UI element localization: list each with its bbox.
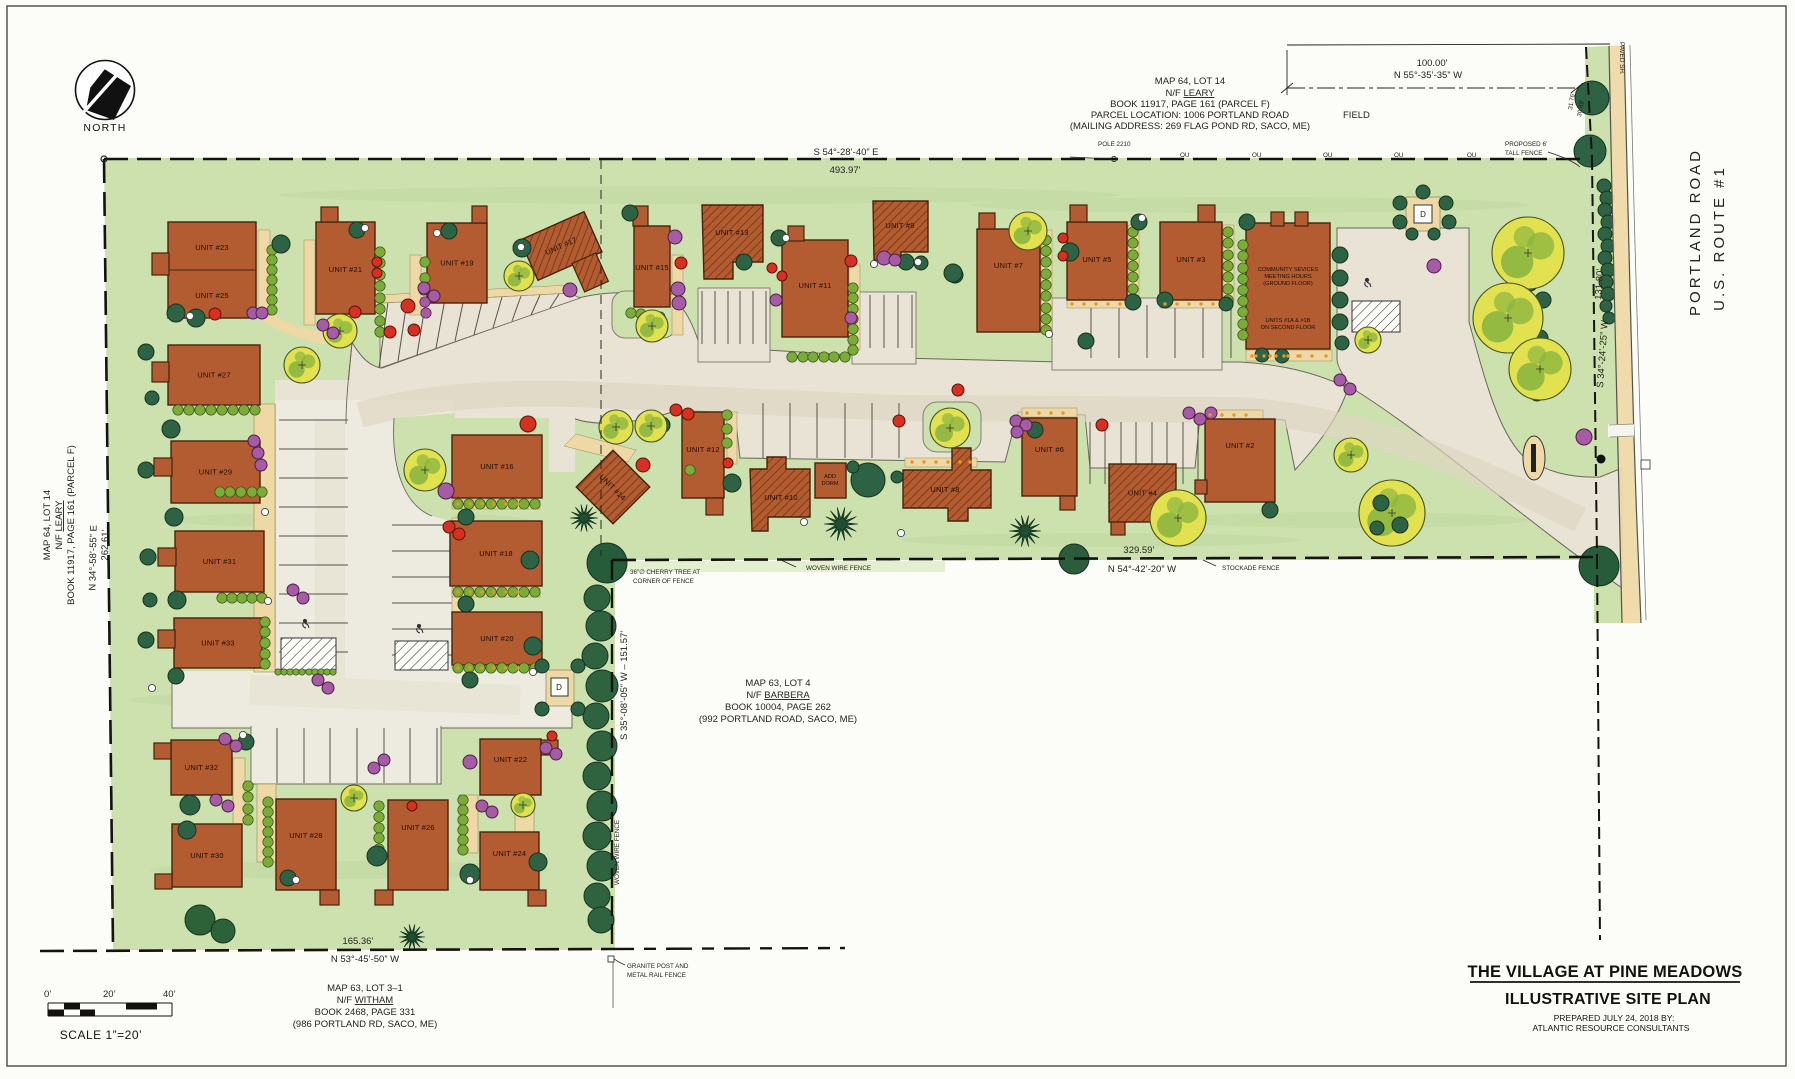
svg-text:PROPOSED 6’: PROPOSED 6’ <box>1505 141 1548 148</box>
svg-text:165.36’: 165.36’ <box>342 936 373 947</box>
svg-text:ATLANTIC RESOURCE CONSULTANTS: ATLANTIC RESOURCE CONSULTANTS <box>1532 1023 1689 1033</box>
svg-text:UNIT #30: UNIT #30 <box>190 851 224 860</box>
svg-text:DORM: DORM <box>821 481 838 487</box>
svg-text:BOOK 10004, PAGE 262: BOOK 10004, PAGE 262 <box>725 702 831 713</box>
svg-text:CORNER OF FENCE: CORNER OF FENCE <box>633 578 694 585</box>
svg-text:N/F LEARY: N/F LEARY <box>1166 88 1216 99</box>
svg-text:UNIT #3: UNIT #3 <box>1176 255 1205 264</box>
svg-text:(986 PORTLAND RD, SACO, ME: (986 PORTLAND RD, SACO, ME) <box>293 1019 437 1030</box>
svg-text:U.S. ROUTE #1: U.S. ROUTE #1 <box>1711 165 1728 311</box>
svg-text:UNIT #24: UNIT #24 <box>493 849 527 858</box>
svg-text:STOCKADE FENCE: STOCKADE FENCE <box>1222 565 1280 572</box>
svg-text:ADD: ADD <box>824 474 836 480</box>
svg-text:(GROUND FLOOR): (GROUND FLOOR) <box>1263 281 1313 287</box>
svg-text:BOOK 11917, PAGE 161 (PARCEL F: BOOK 11917, PAGE 161 (PARCEL F) <box>66 445 77 605</box>
svg-text:UNIT #2: UNIT #2 <box>1225 441 1254 450</box>
svg-text:N 34°-58’-55” E: N 34°-58’-55” E <box>87 525 99 591</box>
svg-text:FIELD: FIELD <box>1343 110 1370 121</box>
svg-text:ON SECOND FLOOR: ON SECOND FLOOR <box>1261 325 1316 331</box>
svg-text:UNIT #7: UNIT #7 <box>994 261 1023 270</box>
svg-text:UNIT #15: UNIT #15 <box>635 263 669 272</box>
svg-text:UNIT #8: UNIT #8 <box>930 485 959 494</box>
svg-text:UNIT #31: UNIT #31 <box>203 557 237 566</box>
svg-text:PARCEL LOCATION: 1006 PORTLAND: PARCEL LOCATION: 1006 PORTLAND ROAD <box>1091 110 1289 121</box>
svg-text:OU: OU <box>1180 152 1190 159</box>
svg-text:0’: 0’ <box>44 989 51 1000</box>
svg-text:(MAILING ADDRESS: 269 FLAG PON: (MAILING ADDRESS: 269 FLAG POND RD, SACO… <box>1070 121 1310 132</box>
svg-text:UNIT #20: UNIT #20 <box>480 634 514 643</box>
svg-text:BOOK 11917, PAGE 161 (PARCEL F: BOOK 11917, PAGE 161 (PARCEL F) <box>1110 99 1270 110</box>
svg-text:UNIT #4: UNIT #4 <box>1128 489 1157 498</box>
svg-text:D: D <box>1420 210 1426 219</box>
svg-text:BOOK 2468, PAGE 331: BOOK 2468, PAGE 331 <box>315 1007 416 1018</box>
svg-text:UNIT #21: UNIT #21 <box>329 265 363 274</box>
svg-text:UNIT #12: UNIT #12 <box>686 445 720 454</box>
svg-text:PORTLAND ROAD: PORTLAND ROAD <box>1687 148 1704 316</box>
svg-text:N/F WITHAM: N/F WITHAM <box>337 995 394 1006</box>
svg-text:UNIT #13: UNIT #13 <box>715 228 749 237</box>
svg-text:UNIT #10: UNIT #10 <box>764 493 798 502</box>
svg-text:UNIT #16: UNIT #16 <box>480 462 514 471</box>
svg-text:METAL RAIL FENCE: METAL RAIL FENCE <box>627 972 686 979</box>
svg-text:COMMUNITY SEVICES: COMMUNITY SEVICES <box>1258 267 1318 273</box>
svg-text:SCALE 1”=20’: SCALE 1”=20’ <box>60 1028 142 1042</box>
svg-text:UNIT #29: UNIT #29 <box>199 468 233 477</box>
svg-text:OU: OU <box>1467 152 1477 159</box>
svg-text:MAP 64, LOT 14: MAP 64, LOT 14 <box>42 490 53 560</box>
svg-text:N/F LEARY: N/F LEARY <box>54 500 65 550</box>
svg-text:S 35°-08’-05” W – 151.57’: S 35°-08’-05” W – 151.57’ <box>619 631 630 740</box>
svg-text:UNIT #23: UNIT #23 <box>195 243 229 252</box>
svg-text:ILLUSTRATIVE SITE PLAN: ILLUSTRATIVE SITE PLAN <box>1505 991 1711 1008</box>
svg-text:N 54°-42’-20” W: N 54°-42’-20” W <box>1108 564 1176 575</box>
svg-text:UNIT #22: UNIT #22 <box>494 755 528 764</box>
svg-text:S 54°-28’-40” E: S 54°-28’-40” E <box>813 147 878 158</box>
svg-text:N 55°-35’-35” W: N 55°-35’-35” W <box>1394 70 1462 81</box>
svg-text:UNIT #18: UNIT #18 <box>479 549 513 558</box>
svg-text:PAVED SH.: PAVED SH. <box>1618 42 1625 75</box>
svg-text:UNIT #11: UNIT #11 <box>798 281 831 290</box>
svg-text:N/F BARBERA: N/F BARBERA <box>746 690 810 701</box>
svg-text:OU: OU <box>1394 152 1404 159</box>
svg-text:D: D <box>556 683 562 692</box>
svg-text:UNIT #27: UNIT #27 <box>197 371 231 380</box>
svg-text:UNIT #5: UNIT #5 <box>1082 255 1111 264</box>
svg-text:UNIT #32: UNIT #32 <box>185 763 219 772</box>
svg-text:20’: 20’ <box>103 989 116 1000</box>
svg-text:N 53°-45’-50” W: N 53°-45’-50” W <box>331 954 399 965</box>
svg-text:THE VILLAGE AT PINE MEADOWS: THE VILLAGE AT PINE MEADOWS <box>1468 963 1743 981</box>
svg-text:MAP 64, LOT 14: MAP 64, LOT 14 <box>1155 76 1225 87</box>
svg-text:TALL FENCE: TALL FENCE <box>1505 150 1542 157</box>
svg-text:WOVEN WIRE FENCE: WOVEN WIRE FENCE <box>806 565 871 572</box>
svg-text:UNIT #19: UNIT #19 <box>440 259 474 268</box>
svg-text:UNIT #6: UNIT #6 <box>1035 445 1064 454</box>
svg-text:262.61’: 262.61’ <box>100 529 112 560</box>
svg-text:(992 PORTLAND ROAD, SACO,: (992 PORTLAND ROAD, SACO, ME) <box>699 714 857 725</box>
svg-text:329.59’: 329.59’ <box>1123 545 1154 556</box>
svg-text:UNIT #28: UNIT #28 <box>289 831 323 840</box>
svg-text:UNIT #33: UNIT #33 <box>201 639 235 648</box>
svg-text:MAP 63, LOT 3–1: MAP 63, LOT 3–1 <box>327 983 403 994</box>
svg-text:UNITS #1A & #1B: UNITS #1A & #1B <box>1266 318 1311 324</box>
svg-text:100.00': 100.00' <box>1417 58 1448 69</box>
svg-text:40’: 40’ <box>163 989 176 1000</box>
svg-text:UNIT #25: UNIT #25 <box>195 291 229 300</box>
svg-text:OU: OU <box>1323 152 1333 159</box>
svg-text:UNIT #9: UNIT #9 <box>885 221 914 230</box>
svg-text:GRANITE POST AND: GRANITE POST AND <box>627 963 689 970</box>
svg-text:POLE 2210: POLE 2210 <box>1098 141 1131 148</box>
svg-text:493.97': 493.97' <box>830 165 861 176</box>
svg-text:NORTH: NORTH <box>83 122 126 134</box>
svg-text:131.80’: 131.80’ <box>1593 268 1606 300</box>
svg-text:UNIT #26: UNIT #26 <box>401 823 435 832</box>
svg-text:OU: OU <box>1252 152 1262 159</box>
svg-text:MAP 63, LOT 4: MAP 63, LOT 4 <box>745 678 810 689</box>
svg-text:WOVEN WIRE FENCE: WOVEN WIRE FENCE <box>614 820 621 885</box>
svg-text:PREPARED JULY 24, 2018 BY:: PREPARED JULY 24, 2018 BY: <box>1554 1013 1675 1023</box>
svg-text:36”∅ CHERRY TREE AT: 36”∅ CHERRY TREE AT <box>630 569 700 576</box>
svg-text:MEETING HOURS: MEETING HOURS <box>1264 274 1312 280</box>
